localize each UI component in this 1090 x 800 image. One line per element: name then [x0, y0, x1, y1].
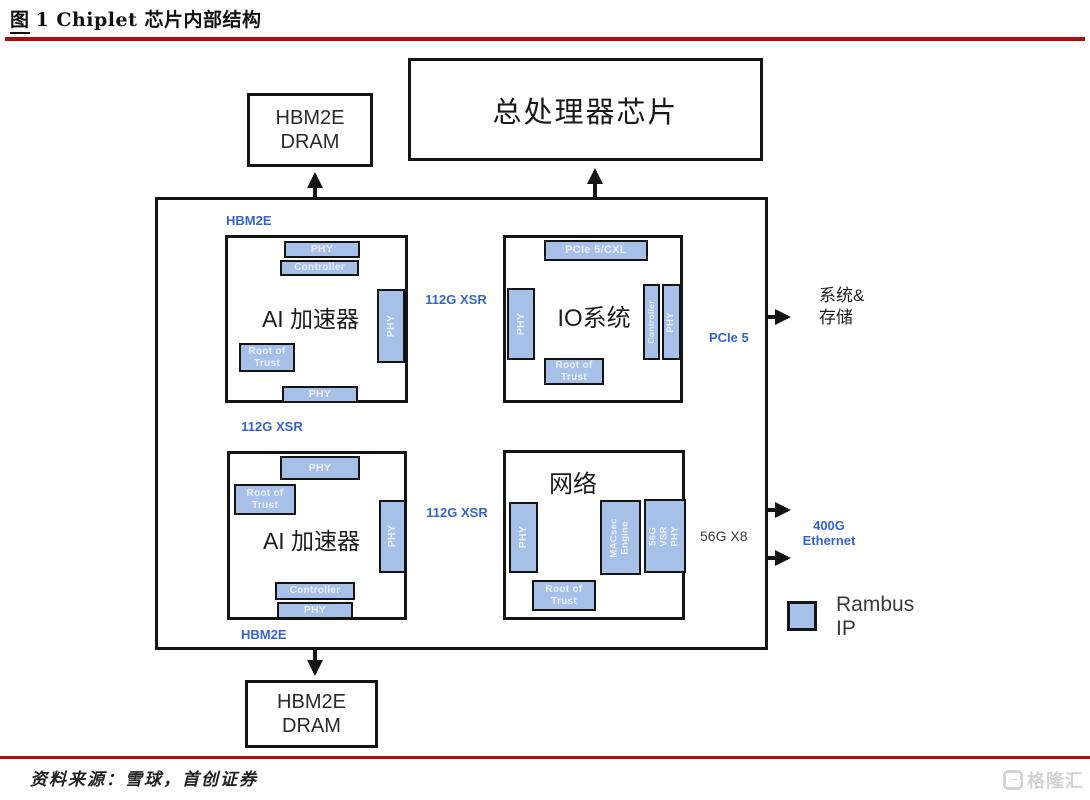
56g-x8-label: 56G X8 [700, 528, 747, 544]
figure-title-text: 1 Chiplet 芯片内部结构 [36, 9, 262, 31]
ai-accelerator-2-block: AI 加速器 PHY Root of Trust PHY Controller … [227, 451, 407, 620]
main-processor-box: 总处理器芯片 [408, 58, 763, 161]
io-root-of-trust-chip: Root of Trust [544, 358, 604, 385]
xsr-bottom-label: 112G XSR [417, 506, 497, 521]
io-system-title: IO系统 [544, 298, 644, 333]
hbm2e-dram-bottom-label: HBM2E DRAM [277, 690, 346, 738]
net-root-of-trust-chip: Root of Trust [532, 580, 596, 611]
hbm2e-dram-top-label: HBM2E DRAM [276, 106, 345, 154]
net-macsec-engine-chip: MACsec Engine [600, 500, 641, 575]
io-system-block: IO系统 PCIe 5/CXL PHY Controller PHY Root … [503, 235, 683, 403]
watermark-text: 格隆汇 [1027, 767, 1084, 793]
rambus-ip-swatch [787, 601, 817, 631]
ai1-root-of-trust-chip: Root of Trust [239, 343, 295, 372]
footer-rule [0, 756, 1090, 759]
io-controller-chip: Controller [643, 284, 660, 360]
figure-label: 图 [10, 9, 30, 34]
ai2-phy-top-chip: PHY [280, 456, 360, 480]
ai1-phy-right-chip: PHY [377, 289, 405, 363]
figure-page: 图1 Chiplet 芯片内部结构 HBM2E DRAM 总处理器芯片 HBM2… [0, 0, 1090, 800]
io-phy-left-chip: PHY [507, 288, 535, 360]
ai2-phy-bottom-chip: PHY [277, 602, 353, 619]
header-rule [5, 37, 1085, 41]
ai-accelerator-1-block: AI 加速器 PHY Controller Root of Trust PHY … [225, 235, 408, 403]
network-title: 网络 [523, 464, 623, 499]
io-pcie5-cxl-chip: PCIe 5/CXL [544, 240, 648, 261]
400g-ethernet-label: 400G Ethernet [796, 519, 862, 549]
ai2-controller-chip: Controller [275, 582, 355, 600]
system-storage-label: 系统& 存储 [819, 285, 864, 329]
io-phy-right-chip: PHY [662, 284, 681, 360]
hbm2e-top-label: HBM2E [226, 214, 272, 229]
rambus-ip-label: Rambus IP [836, 593, 914, 641]
ai2-root-of-trust-chip: Root of Trust [234, 484, 296, 515]
gelonghui-logo-icon [1003, 770, 1023, 790]
ai1-phy-bottom-chip: PHY [282, 386, 358, 403]
watermark: 格隆汇 [1003, 767, 1084, 793]
xsr-left-label: 112G XSR [234, 420, 310, 435]
hbm2e-bottom-label: HBM2E [241, 628, 287, 643]
pcie5-label: PCIe 5 [709, 331, 749, 346]
ai1-phy-top-chip: PHY [284, 241, 360, 258]
ai2-phy-right-chip: PHY [379, 500, 406, 573]
net-phy-left-chip: PHY [509, 502, 538, 573]
main-processor-label: 总处理器芯片 [492, 89, 678, 131]
xsr-top-label: 112G XSR [413, 293, 499, 308]
net-56g-vsr-phy-chip: 56G VSR PHY [644, 499, 686, 573]
ai-accelerator-1-title: AI 加速器 [238, 300, 383, 334]
hbm2e-dram-bottom-box: HBM2E DRAM [245, 680, 378, 748]
source-note: 资料来源：雪球，首创证券 [30, 765, 258, 790]
hbm2e-dram-top-box: HBM2E DRAM [247, 93, 373, 167]
figure-title: 图1 Chiplet 芯片内部结构 [10, 5, 262, 32]
ai-accelerator-2-title: AI 加速器 [239, 522, 384, 556]
ai1-controller-chip: Controller [280, 260, 359, 276]
network-block: 网络 PHY MACsec Engine 56G VSR PHY Root of… [503, 450, 685, 620]
